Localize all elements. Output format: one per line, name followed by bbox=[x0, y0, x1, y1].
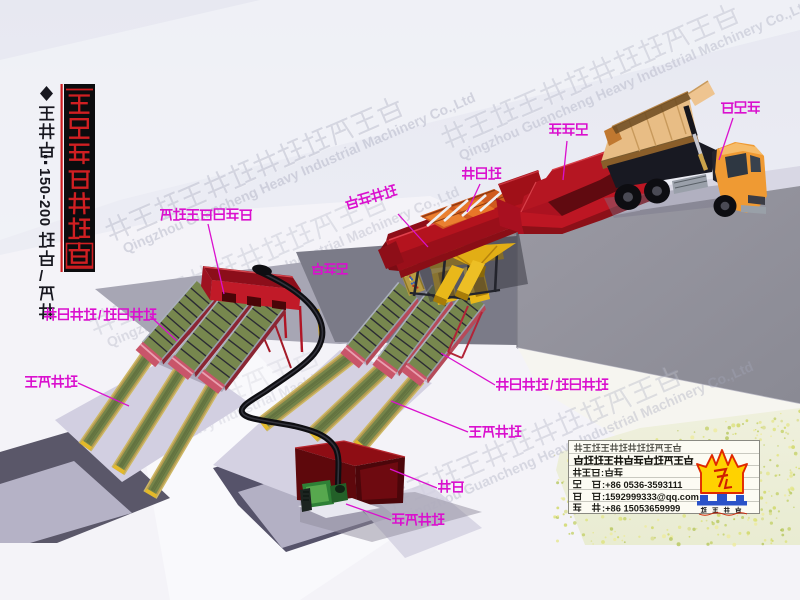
svg-text:150-200: 150-200 bbox=[36, 168, 53, 227]
svg-text::: : bbox=[601, 468, 604, 478]
svg-text::+86 15053659999: :+86 15053659999 bbox=[602, 504, 680, 514]
svg-text:/: / bbox=[550, 379, 554, 393]
svg-text::+86 0536-3593111: :+86 0536-3593111 bbox=[602, 480, 682, 490]
svg-text:/: / bbox=[98, 309, 102, 323]
svg-text::1592999333@qq.com: :1592999333@qq.com bbox=[602, 492, 699, 502]
